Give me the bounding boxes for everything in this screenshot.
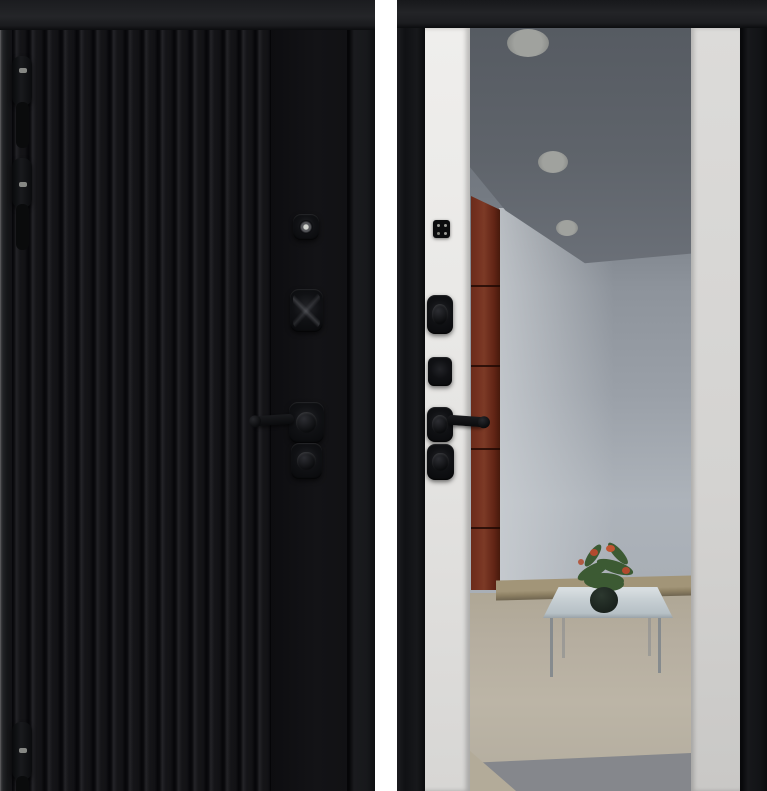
lock-cylinder [427,295,453,334]
key-escutcheon [428,357,452,386]
hinge-highlight [19,68,27,73]
plant-flower [590,549,598,556]
door-exterior-panel [0,0,375,791]
cabinet-seam [471,448,500,450]
table-leg [550,618,553,677]
table-leg [648,618,651,656]
table-leg [658,618,661,673]
hinge-highlight [19,748,27,753]
hinge-highlight [19,182,27,187]
plant-pot [590,587,618,613]
table-leg [562,618,565,658]
handle-ball-tip [249,415,262,428]
deadbolt-escutcheon [291,443,322,479]
product-photo [0,0,767,791]
door-frame-right [740,0,767,791]
ceiling-light [507,29,549,57]
reflected-plant [570,543,640,615]
cabinet-seam [471,527,500,529]
handle-rose [289,402,324,443]
mirror-insert [470,28,691,791]
plant-flower [578,559,584,565]
door-frame-top [397,0,767,28]
door-frame-top [0,0,375,30]
lock-cylinder-cover [290,289,323,332]
cabinet-seam [471,285,500,287]
plant-flower [622,567,630,574]
door-frame-left [397,0,425,791]
lock-indicator [433,220,450,238]
reflected-wall [499,208,614,593]
hinge-pin [16,776,29,791]
hinge-pin [16,204,29,250]
ribbed-cladding [12,30,270,791]
door-interior-panel [397,0,767,791]
ceiling-light [538,151,568,173]
door-frame-left [0,0,12,791]
hinge-knuckle [12,56,32,106]
door-frame-right [347,0,375,791]
hinge-pin [16,102,29,148]
ceiling-light [556,220,578,236]
peephole [293,214,319,240]
white-trim-right [691,28,740,791]
reflected-cabinet [471,196,500,590]
cabinet-seam [471,365,500,367]
deadbolt [427,444,454,480]
plant-flower [606,545,615,552]
